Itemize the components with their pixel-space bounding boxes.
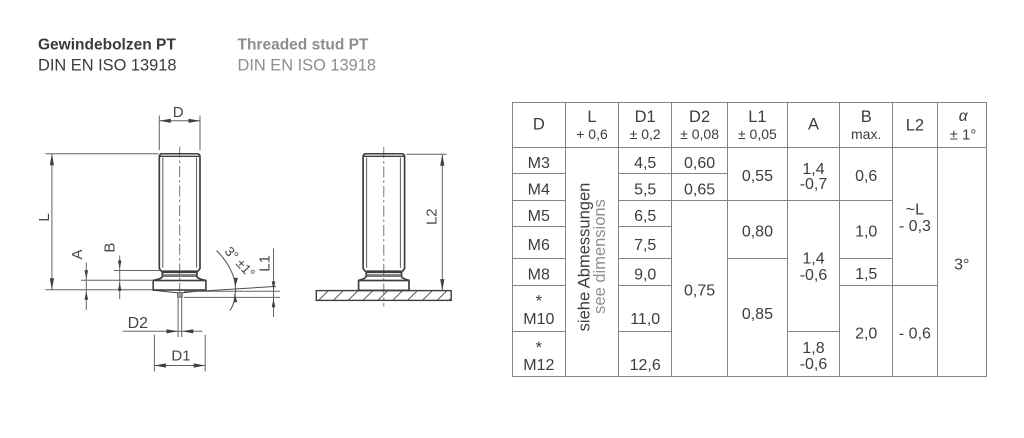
svg-text:Gewindebolzen PT: Gewindebolzen PT xyxy=(38,37,176,54)
svg-text:M4: M4 xyxy=(528,181,550,198)
svg-text:D: D xyxy=(173,104,184,121)
svg-text:6,5: 6,5 xyxy=(634,208,656,225)
svg-text:± 0,2: ± 0,2 xyxy=(630,126,661,142)
svg-text:*: * xyxy=(535,292,542,311)
svg-text:Threaded stud PT: Threaded stud PT xyxy=(238,37,369,54)
svg-text:7,5: 7,5 xyxy=(634,237,656,254)
svg-text:α: α xyxy=(959,108,969,125)
svg-text:M6: M6 xyxy=(528,237,550,254)
svg-text:0,75: 0,75 xyxy=(684,283,715,300)
svg-text:1,8: 1,8 xyxy=(802,340,824,357)
svg-text:M12: M12 xyxy=(523,357,554,374)
svg-text:± 0,08: ± 0,08 xyxy=(680,126,719,142)
svg-text:0,80: 0,80 xyxy=(742,224,773,241)
svg-text:- 0,6: - 0,6 xyxy=(899,326,931,343)
svg-text:-0,7: -0,7 xyxy=(800,176,828,193)
svg-text:0,60: 0,60 xyxy=(684,155,715,172)
svg-text:B: B xyxy=(102,243,119,253)
svg-text:*: * xyxy=(535,338,542,357)
svg-text:12,6: 12,6 xyxy=(630,357,661,374)
svg-text:L: L xyxy=(36,213,53,221)
svg-text:0,6: 0,6 xyxy=(855,168,877,185)
svg-text:1,0: 1,0 xyxy=(855,224,877,241)
svg-text:DIN EN ISO 13918: DIN EN ISO 13918 xyxy=(38,57,176,75)
svg-text:11,0: 11,0 xyxy=(630,311,660,328)
svg-text:D1: D1 xyxy=(635,108,656,126)
svg-text:DIN EN ISO 13918: DIN EN ISO 13918 xyxy=(238,57,376,75)
svg-text:~L: ~L xyxy=(906,202,924,219)
svg-text:+ 0,6: + 0,6 xyxy=(576,126,608,142)
svg-text:M8: M8 xyxy=(528,266,550,283)
svg-text:0,55: 0,55 xyxy=(742,168,773,185)
svg-text:-0,6: -0,6 xyxy=(800,356,828,373)
svg-text:L2: L2 xyxy=(423,208,440,225)
svg-text:L2: L2 xyxy=(906,117,924,135)
svg-text:max.: max. xyxy=(851,126,881,142)
svg-text:A: A xyxy=(69,249,86,259)
svg-text:5,5: 5,5 xyxy=(634,181,656,198)
svg-text:A: A xyxy=(808,116,819,134)
svg-text:M5: M5 xyxy=(528,208,550,225)
svg-text:± 0,05: ± 0,05 xyxy=(738,126,777,142)
svg-text:M10: M10 xyxy=(523,311,554,328)
svg-text:1,4: 1,4 xyxy=(802,251,824,268)
svg-text:M3: M3 xyxy=(528,155,550,172)
svg-text:0,65: 0,65 xyxy=(684,181,715,198)
svg-text:D1: D1 xyxy=(171,348,190,365)
svg-text:9,0: 9,0 xyxy=(634,266,656,283)
svg-text:B: B xyxy=(861,108,872,126)
svg-text:D: D xyxy=(533,116,545,134)
svg-text:L1: L1 xyxy=(257,255,274,272)
svg-text:L1: L1 xyxy=(748,108,766,126)
svg-text:see dimensions: see dimensions xyxy=(591,199,609,314)
svg-text:D2: D2 xyxy=(128,315,149,332)
svg-text:-0,6: -0,6 xyxy=(800,267,828,284)
svg-text:- 0,3: - 0,3 xyxy=(899,218,931,235)
svg-text:L: L xyxy=(587,108,596,126)
svg-text:3°: 3° xyxy=(954,256,969,273)
svg-text:1,5: 1,5 xyxy=(855,266,877,283)
svg-text:± 1°: ± 1° xyxy=(950,127,977,144)
svg-text:D2: D2 xyxy=(689,108,710,126)
svg-text:4,5: 4,5 xyxy=(634,155,656,172)
svg-text:2,0: 2,0 xyxy=(855,326,877,343)
svg-text:0,85: 0,85 xyxy=(742,306,773,323)
